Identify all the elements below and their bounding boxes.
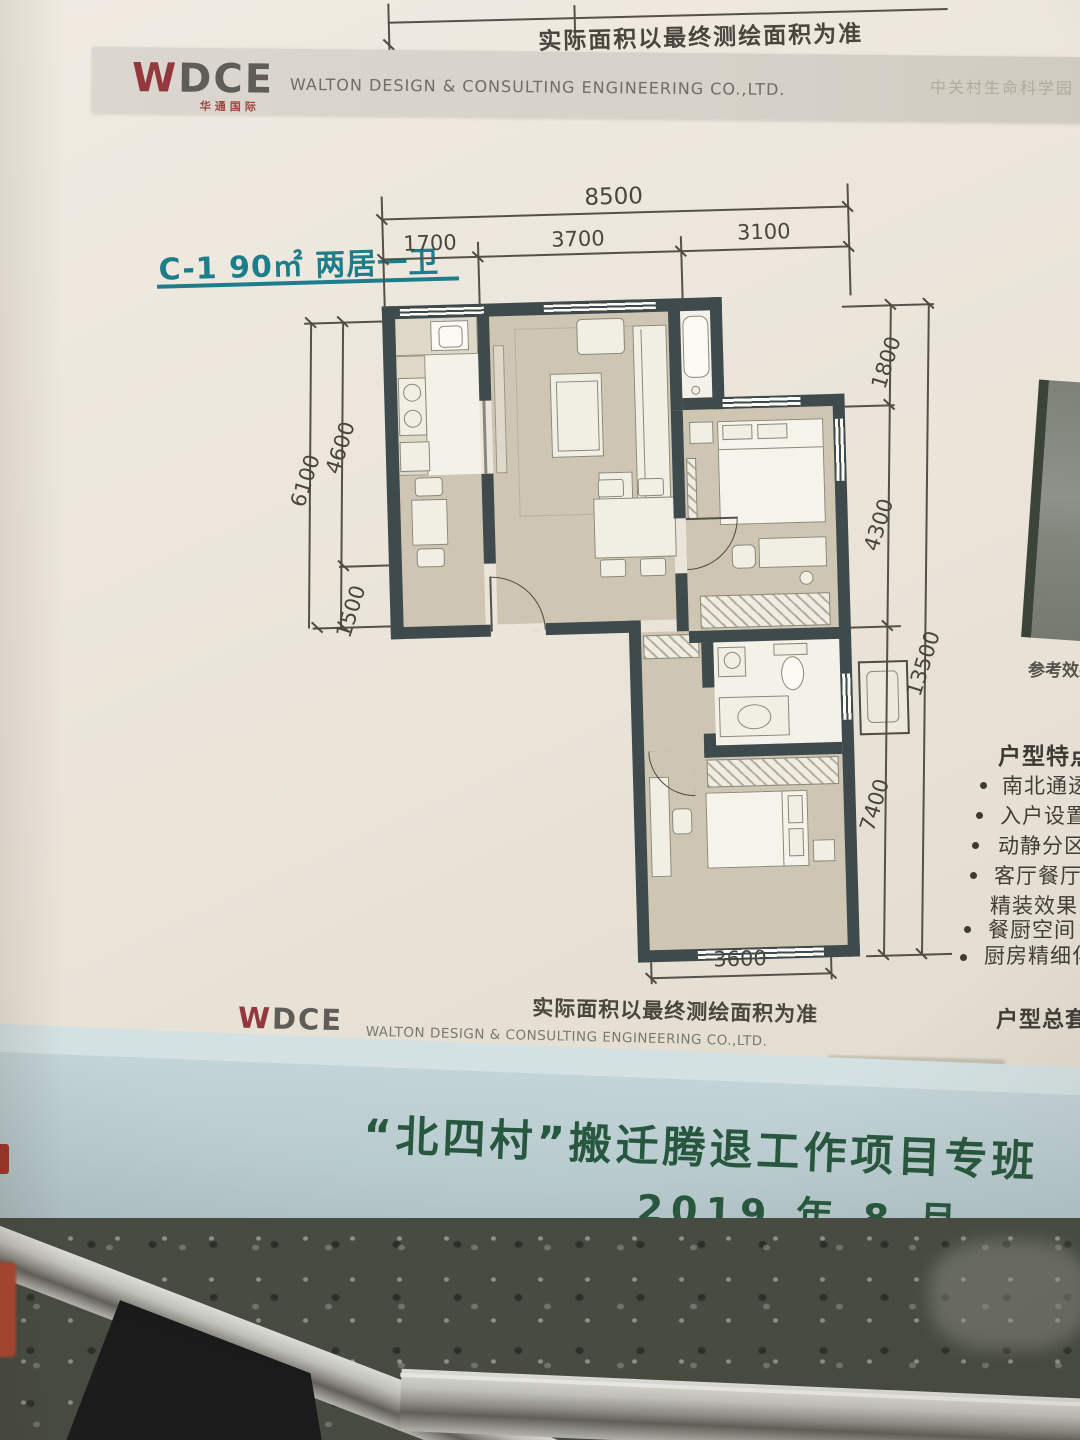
photo-of-floorplan-poster: 实际面积以最终测绘面积为准 WDCE 华通国际 WALTON DESIGN & … xyxy=(0,0,1080,1440)
wdce-logo-w: W xyxy=(238,1001,273,1036)
ground-light-patch xyxy=(930,1240,1080,1350)
wdce-logo-rest: DCE xyxy=(272,1001,344,1037)
orange-object xyxy=(0,1262,16,1357)
banner-title: “北四村”搬迁腾退工作项目专班 xyxy=(362,1101,1039,1190)
red-sliver xyxy=(0,1144,9,1174)
footer-group: 实际面积以最终测绘面积为准 WDCE 华通国际 WALTON DESIGN & … xyxy=(0,0,1080,1113)
wdce-logo-footer: WDCE xyxy=(238,1001,344,1038)
plan-note: 实际面积以最终测绘面积为准 xyxy=(532,992,819,1029)
